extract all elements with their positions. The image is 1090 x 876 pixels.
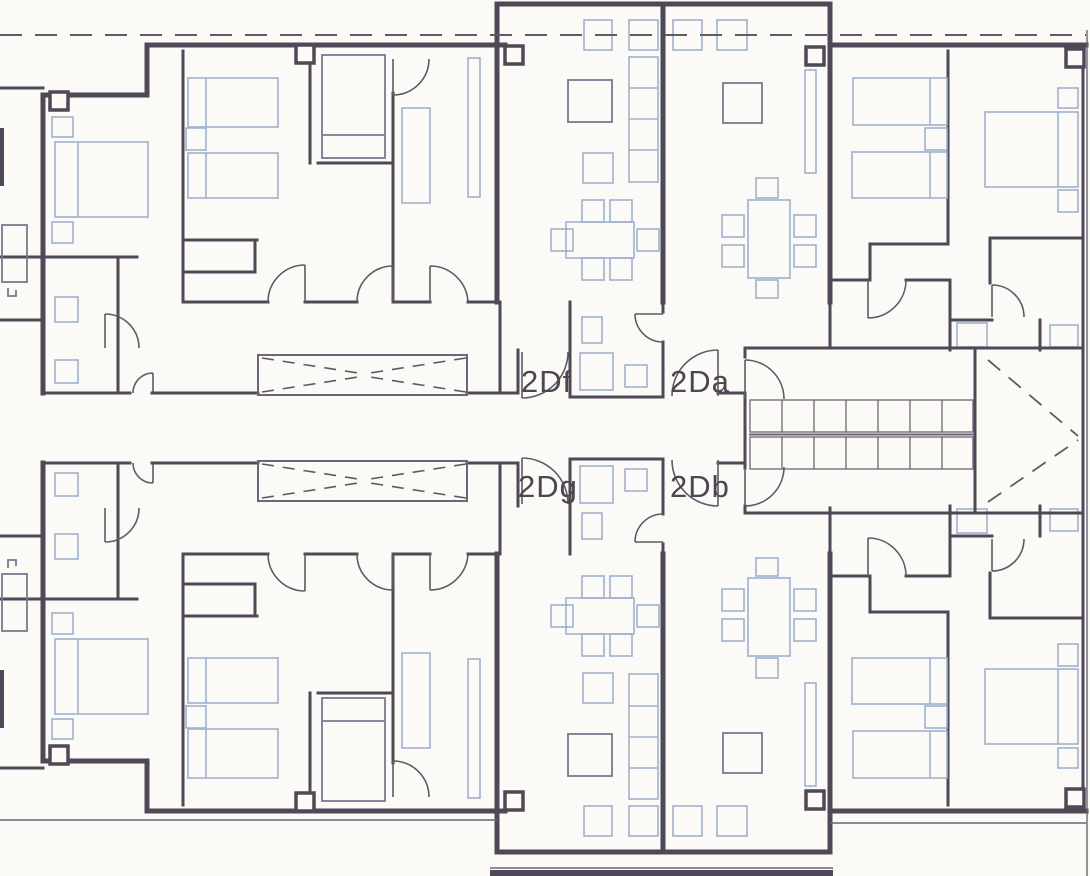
floor-plan-drawing: 2Df 2Da 2Dg 2Db bbox=[0, 0, 1090, 876]
living-room-2df-furniture bbox=[551, 20, 659, 280]
living-room-2da-furniture bbox=[673, 20, 816, 298]
furniture-left-rooms bbox=[2, 117, 148, 383]
stair-treads bbox=[750, 400, 973, 469]
unit-label-2db: 2Db bbox=[670, 469, 730, 504]
scan-artifact-left-2 bbox=[0, 670, 4, 728]
furniture-right-apartment bbox=[852, 78, 1078, 347]
stair-core bbox=[745, 348, 1083, 513]
bathroom-fixtures bbox=[580, 317, 647, 390]
scan-artifact-left bbox=[0, 128, 4, 186]
floor-plan-top-half bbox=[0, 4, 1086, 398]
unit-label-2dg: 2Dg bbox=[518, 469, 578, 504]
unit-label-2da: 2Da bbox=[670, 364, 730, 399]
furniture-left-apartment bbox=[186, 55, 480, 203]
stair-doors bbox=[745, 360, 784, 506]
floor-plan-page: 2Df 2Da 2Dg 2Db bbox=[0, 0, 1090, 876]
floor-plan-bottom-half bbox=[0, 458, 1086, 852]
unit-label-2df: 2Df bbox=[521, 364, 572, 399]
walkway-edge-line bbox=[0, 820, 1086, 868]
stair-direction-arrow bbox=[988, 360, 1078, 502]
interior-walls bbox=[0, 45, 1083, 397]
void-shaft bbox=[258, 355, 467, 395]
scan-artifact-bar bbox=[490, 870, 833, 876]
